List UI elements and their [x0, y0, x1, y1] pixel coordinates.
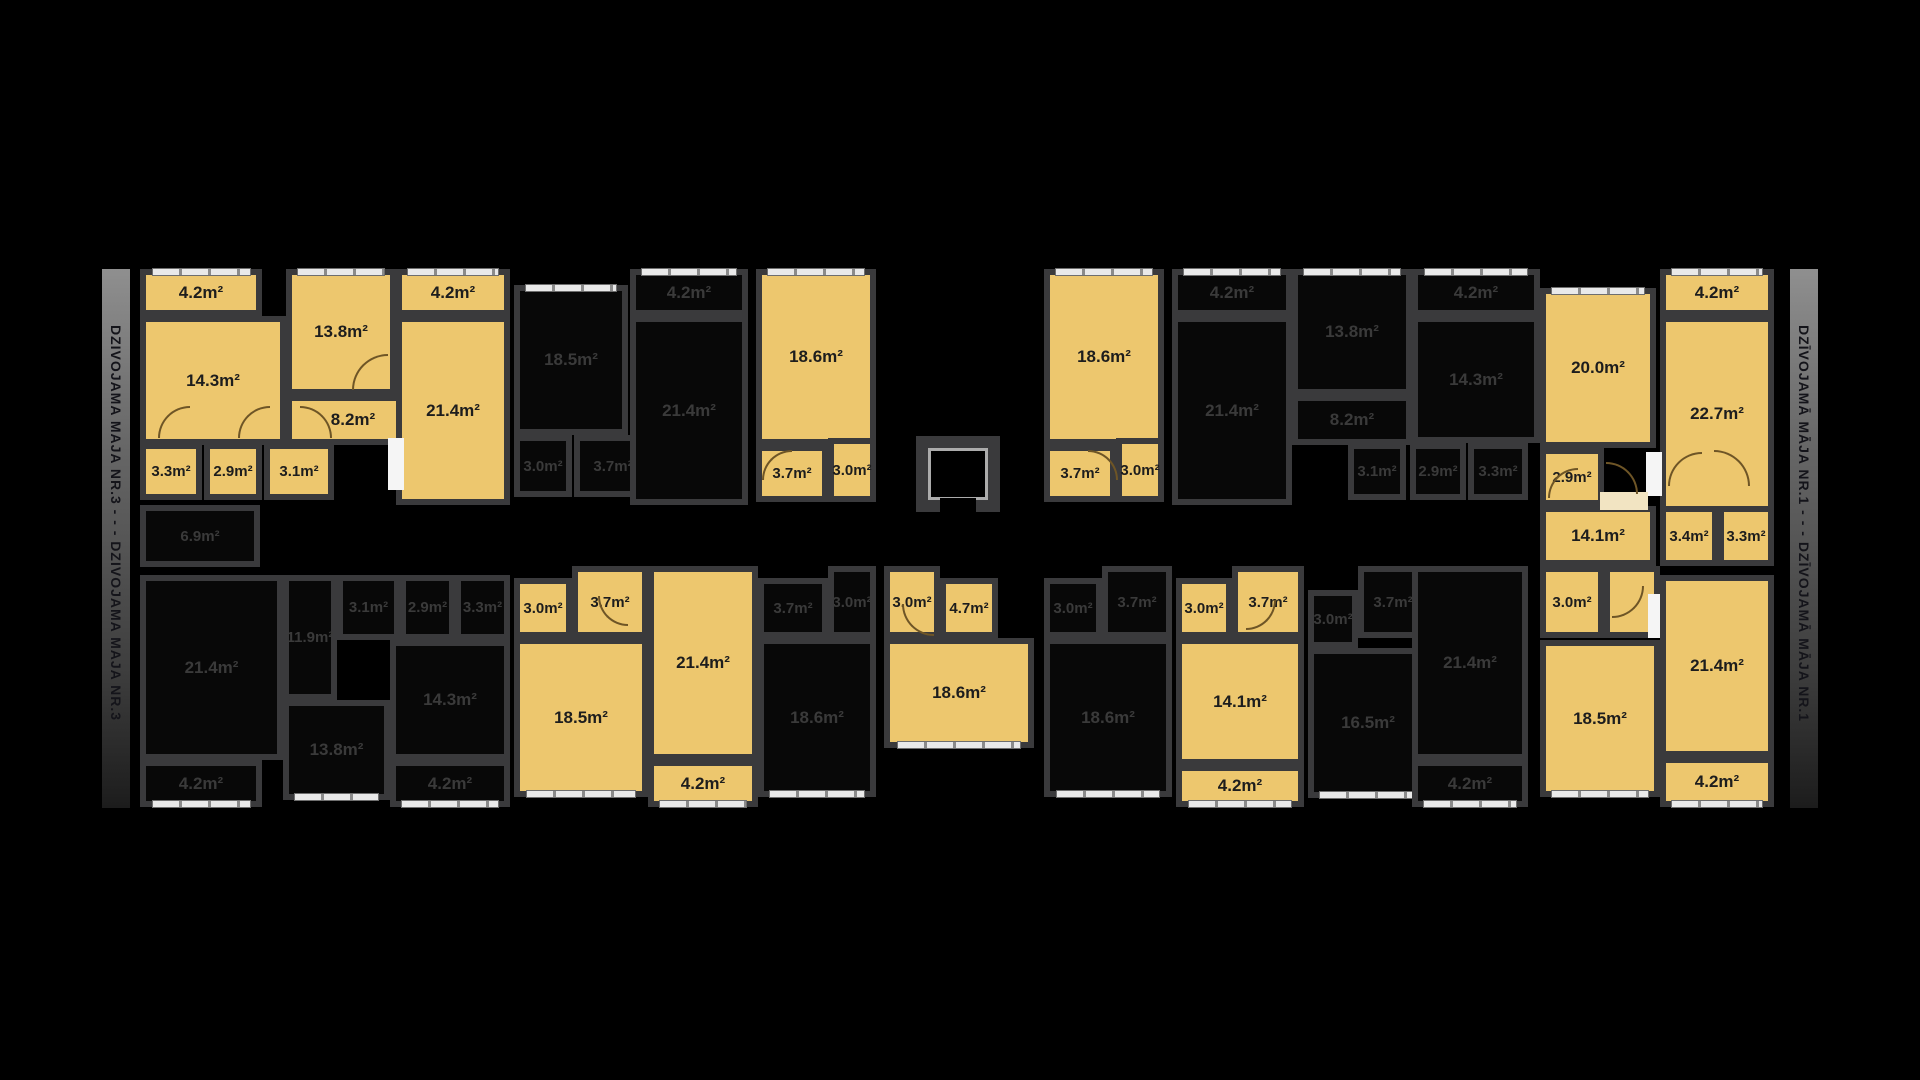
room-area-label: 14.3m²	[423, 690, 477, 710]
room-area-label: 4.2m²	[1454, 283, 1498, 303]
room-d7-room-16-5: 16.5m²	[1308, 648, 1428, 798]
room-area-label: 21.4m²	[185, 658, 239, 678]
room-area-label: 3.3m²	[1726, 528, 1765, 545]
room-d5-room-3-0: 3.0m²	[1044, 578, 1102, 638]
room-area-label: 3.1m²	[279, 463, 318, 480]
room-d7-room-3-0: 3.0m²	[1308, 590, 1358, 648]
room-d1-room-11-9: 11.9m²	[283, 575, 337, 700]
room-d7-room-21-4: 21.4m²	[1412, 566, 1528, 760]
room-d5-room-3-7: 3.7m²	[1102, 566, 1172, 638]
room-area-label: 3.0m²	[832, 594, 871, 611]
room-area-label: 6.9m²	[180, 528, 219, 545]
room-area-label: 3.1m²	[1357, 463, 1396, 480]
room-y4-room-18-6: 18.6m²	[884, 638, 1034, 748]
room-y2-balcony: 4.2m²	[648, 760, 758, 807]
window-strip	[526, 790, 636, 798]
room-a2-room-13-8: 13.8m²	[1292, 269, 1412, 395]
room-area-label: 4.2m²	[1218, 776, 1262, 796]
room-area-label: 4.2m²	[667, 283, 711, 303]
window-strip	[401, 800, 498, 808]
window-strip	[407, 268, 499, 276]
room-area-label: 3.0m²	[1184, 600, 1223, 617]
room-area-label: 3.0m²	[1053, 600, 1092, 617]
room-area-label: 4.2m²	[1695, 772, 1739, 792]
window-strip	[1551, 790, 1648, 798]
door-swing-icon	[1606, 462, 1638, 494]
room-area-label: 18.6m²	[1081, 708, 1135, 728]
passage-opening	[1600, 492, 1648, 510]
room-area-label: 18.5m²	[554, 708, 608, 728]
room-area-label: 2.9m²	[1418, 463, 1457, 480]
window-strip	[1671, 800, 1763, 808]
room-area-label: 14.3m²	[186, 371, 240, 391]
room-e-room-3-0: 3.0m²	[1540, 566, 1604, 638]
room-area-label: 3.4m²	[1669, 528, 1708, 545]
window-strip	[897, 741, 1021, 749]
window-strip	[641, 268, 736, 276]
room-area-label: 2.9m²	[408, 599, 447, 616]
window-strip	[1056, 790, 1160, 798]
room-area-label: 3.3m²	[151, 463, 190, 480]
room-a2-room-8-2: 8.2m²	[1292, 395, 1412, 445]
room-area-label: 3.3m²	[463, 599, 502, 616]
room-a-room-3-1: 3.1m²	[264, 443, 334, 500]
window-strip	[659, 800, 747, 808]
room-area-label: 18.6m²	[790, 708, 844, 728]
room-area-label: 3.0m²	[1552, 594, 1591, 611]
passage-opening	[1646, 452, 1662, 496]
window-strip	[1188, 800, 1292, 808]
room-b-room-21-4: 21.4m²	[630, 316, 748, 505]
building-endbar-left: DZIVOJAMA MAJA NR.3 - - - DZIVOJAMA MAJA…	[102, 269, 130, 808]
room-area-label: 13.8m²	[1325, 322, 1379, 342]
room-d5-room-18-6: 18.6m²	[1044, 638, 1172, 797]
room-area-label: 11.9m²	[287, 629, 334, 646]
room-area-label: 8.2m²	[1330, 410, 1374, 430]
window-strip	[525, 284, 617, 292]
room-area-label: 21.4m²	[676, 653, 730, 673]
room-a2-room-14-3: 14.3m²	[1412, 316, 1540, 443]
room-area-label: 21.4m²	[1690, 656, 1744, 676]
room-area-label: 4.2m²	[681, 774, 725, 794]
room-a-balcony-1: 4.2m²	[140, 269, 262, 316]
room-c2-room-18-6: 18.6m²	[1044, 269, 1164, 445]
window-strip	[767, 268, 864, 276]
room-area-label: 8.2m²	[331, 410, 375, 430]
window-strip	[1319, 791, 1416, 799]
window-strip	[1183, 268, 1280, 276]
room-d1-room-14-3: 14.3m²	[390, 640, 510, 760]
room-area-label: 21.4m²	[1205, 401, 1259, 421]
room-area-label: 18.5m²	[1573, 709, 1627, 729]
room-area-label: 3.7m²	[1117, 594, 1156, 611]
room-e-room-18-5: 18.5m²	[1540, 640, 1660, 797]
room-b-room-3-0: 3.0m²	[514, 435, 572, 497]
room-area-label: 3.0m²	[832, 462, 871, 479]
room-e-room-20-0: 20.0m²	[1540, 288, 1656, 448]
window-strip	[1055, 268, 1152, 276]
window-strip	[1551, 287, 1645, 295]
room-a-room-21-4: 21.4m²	[396, 316, 510, 505]
room-e-balcony-2: 4.2m²	[1660, 757, 1774, 807]
room-area-label: 3.0m²	[1120, 462, 1159, 479]
room-y4-room-4-7: 4.7m²	[940, 578, 998, 638]
room-y2-room-18-5: 18.5m²	[514, 638, 648, 797]
room-area-label: 4.2m²	[1448, 774, 1492, 794]
room-a2-room-2-9: 2.9m²	[1410, 443, 1466, 500]
room-area-label: 4.2m²	[431, 283, 475, 303]
passage-opening	[1648, 594, 1660, 638]
window-strip	[1424, 268, 1528, 276]
passage-opening	[388, 438, 404, 490]
room-d1-room-3-3: 3.3m²	[455, 575, 510, 640]
room-area-label: 18.6m²	[1077, 347, 1131, 367]
room-y6-room-3-0: 3.0m²	[1176, 578, 1232, 638]
room-d1-room-2-9: 2.9m²	[400, 575, 455, 640]
room-d1-balcony-2: 4.2m²	[390, 760, 510, 807]
room-area-label: 4.2m²	[179, 283, 223, 303]
room-area-label: 18.6m²	[789, 347, 843, 367]
room-a-room-3-3: 3.3m²	[140, 443, 202, 500]
room-e-room-21-4: 21.4m²	[1660, 575, 1774, 757]
room-b-room-18-5: 18.5m²	[514, 285, 628, 435]
room-area-label: 18.6m²	[932, 683, 986, 703]
room-area-label: 14.1m²	[1571, 526, 1625, 546]
room-a-room-2-9: 2.9m²	[204, 443, 262, 500]
room-d1-room-13-8: 13.8m²	[283, 700, 390, 800]
room-area-label: 3.3m²	[1478, 463, 1517, 480]
room-area-label: 3.0m²	[1313, 611, 1352, 628]
room-c-room-3-0: 3.0m²	[828, 438, 876, 502]
floorplan-canvas: DZIVOJAMA MAJA NR.3 - - - DZIVOJAMA MAJA…	[0, 0, 1920, 1080]
room-e-room-3-4: 3.4m²	[1660, 506, 1718, 566]
room-d1-balcony-1: 4.2m²	[140, 760, 262, 807]
room-y6-room-14-1: 14.1m²	[1176, 638, 1304, 765]
room-area-label: 4.2m²	[1695, 283, 1739, 303]
elevator-opening	[940, 498, 976, 514]
room-area-label: 4.2m²	[179, 774, 223, 794]
room-area-label: 4.2m²	[1210, 283, 1254, 303]
room-y6-balcony: 4.2m²	[1176, 765, 1304, 807]
room-y2-room-3-0: 3.0m²	[514, 578, 572, 638]
room-d3-room-3-0: 3.0m²	[828, 566, 876, 638]
room-area-label: 3.7m²	[1373, 594, 1412, 611]
room-e-room-14-1: 14.1m²	[1540, 506, 1656, 566]
room-c2-room-3-0: 3.0m²	[1116, 438, 1164, 502]
room-area-label: 3.7m²	[593, 458, 632, 475]
room-area-label: 3.0m²	[523, 458, 562, 475]
room-area-label: 2.9m²	[213, 463, 252, 480]
room-area-label: 21.4m²	[1443, 653, 1497, 673]
building-name-right: DZĪVOJAMĀ MĀJA NR.1 - - - DZĪVOJAMĀ MĀJA…	[1796, 269, 1812, 808]
room-area-label: 3.1m²	[349, 599, 388, 616]
room-d3-room-3-7: 3.7m²	[758, 578, 828, 638]
room-c-room-18-6: 18.6m²	[756, 269, 876, 445]
room-d1-room-21-4: 21.4m²	[140, 575, 283, 760]
room-area-label: 4.2m²	[428, 774, 472, 794]
window-strip	[1671, 268, 1763, 276]
room-d1-room-3-1: 3.1m²	[337, 575, 400, 640]
building-name-left: DZIVOJAMA MAJA NR.3 - - - DZIVOJAMA MAJA…	[108, 269, 124, 808]
room-area-label: 18.5m²	[544, 350, 598, 370]
room-area-label: 3.0m²	[523, 600, 562, 617]
room-a2-balcony-2: 4.2m²	[1412, 269, 1540, 316]
window-strip	[297, 268, 385, 276]
room-area-label: 3.7m²	[773, 600, 812, 617]
room-a2-room-3-3: 3.3m²	[1468, 443, 1528, 500]
window-strip	[769, 790, 864, 798]
room-a2-balcony-1: 4.2m²	[1172, 269, 1292, 316]
room-a2-room-3-1: 3.1m²	[1348, 443, 1406, 500]
room-area-label: 20.0m²	[1571, 358, 1625, 378]
room-area-label: 13.8m²	[310, 740, 364, 760]
room-a-balcony-2: 4.2m²	[396, 269, 510, 316]
window-strip	[152, 268, 251, 276]
room-area-label: 14.3m²	[1449, 370, 1503, 390]
room-area-label: 13.8m²	[314, 322, 368, 342]
room-corridor-6-9: 6.9m²	[140, 505, 260, 567]
room-area-label: 21.4m²	[662, 401, 716, 421]
room-area-label: 4.7m²	[949, 600, 988, 617]
room-b-balcony: 4.2m²	[630, 269, 748, 316]
room-e-room-3-3: 3.3m²	[1718, 506, 1774, 566]
room-area-label: 22.7m²	[1690, 404, 1744, 424]
window-strip	[152, 800, 251, 808]
room-d7-balcony: 4.2m²	[1412, 760, 1528, 807]
room-area-label: 21.4m²	[426, 401, 480, 421]
room-area-label: 14.1m²	[1213, 692, 1267, 712]
window-strip	[1303, 268, 1400, 276]
window-strip	[1423, 800, 1517, 808]
building-endbar-right: DZĪVOJAMĀ MĀJA NR.1 - - - DZĪVOJAMĀ MĀJA…	[1790, 269, 1818, 808]
room-a2-room-21-4: 21.4m²	[1172, 316, 1292, 505]
window-strip	[294, 793, 380, 801]
room-y2-room-21-4: 21.4m²	[648, 566, 758, 760]
room-d3-room-18-6: 18.6m²	[758, 638, 876, 797]
room-area-label: 16.5m²	[1341, 713, 1395, 733]
elevator-cabin-outline	[928, 448, 988, 500]
room-e-balcony-1: 4.2m²	[1660, 269, 1774, 316]
